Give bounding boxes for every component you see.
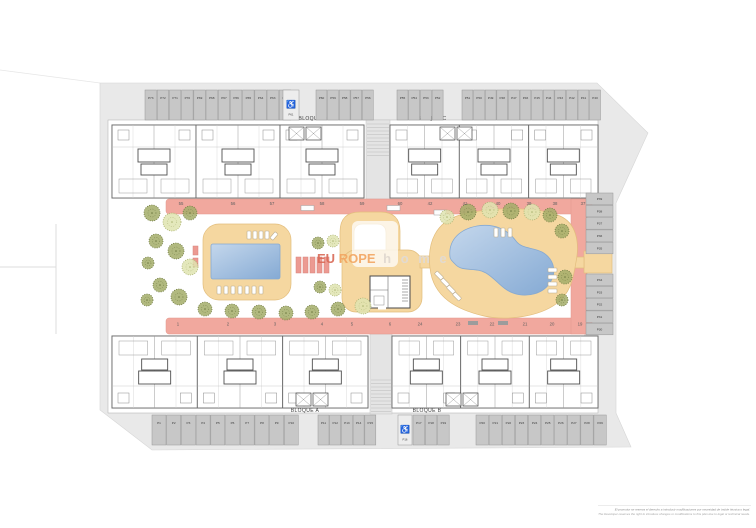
parking-stall [409,90,420,120]
watermark-home: h o m e [383,251,450,266]
parking-stall-label: P51 [465,96,471,100]
parking-stall [502,415,514,445]
core-room [548,371,580,384]
parking-stall-label: P5 [216,421,220,425]
tree-icon [142,257,154,269]
parking-stall [489,415,501,445]
parking-stall-label: P21 [493,421,499,425]
parking-stall-label: P18 [428,421,434,425]
wheelchair-icon: ♿ [286,99,296,109]
parking-stall [240,415,254,445]
parking-stall [270,415,284,445]
parking-stall [438,415,450,445]
parking-stall [476,415,488,445]
sun-lounger [253,231,257,239]
parking-stall [485,90,496,120]
parking-stall [206,90,218,120]
core-room [312,359,338,370]
tree-icon [182,259,198,275]
parking-stall-label: P31 [597,315,603,319]
parking-stall [267,90,279,120]
parking-stall [542,415,554,445]
sun-lounger [231,286,235,294]
parking-stall-label: P54 [411,96,417,100]
parking-stall-label: P12 [332,421,338,425]
bench [498,321,508,325]
bench [387,206,400,211]
driveway-bottom [370,334,392,414]
parking-stall-label: P72 [160,96,166,100]
parking-stall-label: P39 [597,197,603,201]
disclaimer-es: El promotor se reserva el derecho a intr… [615,508,750,512]
parking-stall-label: P32 [597,303,603,307]
parking-stall [351,90,362,120]
parking-stall-label: P15 [368,421,374,425]
block-bloque-c: BLOQUE C [390,116,598,198]
parking-stall-label: P52 [435,96,441,100]
plot-number: 22 [490,322,495,327]
core-room [413,359,439,370]
site-plan-page: BLOQUE DBLOQUE CBLOQUE ABLOQUE B P73P72P… [0,0,756,528]
sun-lounger [548,282,557,286]
parking-stall-label: P70 [185,96,191,100]
parking-stall [328,90,339,120]
parking-row-top-2: P60P59P58P57P56 [316,90,373,120]
parking-stall-label: P49 [488,96,494,100]
sun-lounger [252,286,256,294]
parking-stall-label: P16 [403,438,408,442]
watermark-text: EU ROPE h o m e [317,251,450,266]
parking-stall-label: P65 [246,96,252,100]
tree-icon [144,205,160,221]
parking-stall [339,90,350,120]
parking-stall [145,90,157,120]
parking-stall [218,90,230,120]
parking-stall [182,90,194,120]
parking-stall-label: P43 [557,96,563,100]
parking-stall-label: P38 [597,209,603,213]
parking-stall [353,415,364,445]
plot-number: 58 [320,201,325,206]
driveway-top [366,120,390,199]
planter [310,257,315,273]
parking-stall [515,415,527,445]
sun-lounger [548,289,557,293]
parking-stall-label: P69 [197,96,203,100]
parking-stall-label: P27 [571,421,577,425]
parking-stall-label: P20 [479,421,485,425]
tree-icon [153,278,167,292]
parking-stall-label: P14 [356,421,362,425]
tree-icon [331,302,345,316]
parking-stall-label: P1 [157,421,161,425]
parking-stall [167,415,181,445]
sun-lounger [224,286,228,294]
parking-stall-label: P58 [342,96,348,100]
core-room [547,149,579,162]
parking-stall-label: P61 [289,113,294,117]
parking-stall-label: P23 [519,421,525,425]
sun-lounger [245,286,249,294]
core-room [227,359,253,370]
plot-number: 21 [523,322,528,327]
parking-stall [568,415,580,445]
parking-stall [362,90,373,120]
tree-icon [163,213,181,231]
tree-icon [556,294,568,306]
parking-stall-label: P41 [581,96,587,100]
core-room [410,371,442,384]
tree-icon [524,204,540,220]
parking-stall-label: P25 [545,421,551,425]
tree-icon [460,204,476,220]
parking-stall-label: P44 [546,96,552,100]
parking-stall [474,90,485,120]
parking-row-right-1: P39P38P37P36P35 [586,193,613,254]
parking-stall-label: P64 [258,96,264,100]
tree-icon [440,210,454,224]
core-room [482,359,508,370]
sun-lounger [265,231,269,239]
parking-stall-label: P59 [330,96,336,100]
parking-stall-label: P29 [597,421,603,425]
sheet-frame-lines [0,70,100,334]
parking-row-right-2: P34P33P32P31P30 [586,274,613,335]
parking-stall-label: P17 [416,421,422,425]
parking-stall-label: P35 [597,246,603,250]
parking-stall-label: P4 [201,421,205,425]
parking-stall-label: P71 [172,96,178,100]
parking-stall-label: P55 [400,96,406,100]
plot-number: 19 [578,322,583,327]
plot-number: 40 [496,201,501,206]
block-bloque-a: BLOQUE A [112,336,368,414]
sun-lounger [501,228,505,237]
tree-icon [141,294,153,306]
block-bloque-d: BLOQUE D [112,116,364,198]
disclaimer: El promotor se reserva el derecho a intr… [598,506,751,517]
parking-stall [255,415,269,445]
bench [301,206,314,211]
parking-stall-label: P34 [597,278,603,282]
tree-icon [327,235,339,247]
sun-lounger [508,228,512,237]
parking-stall-label: P46 [523,96,529,100]
parking-stall [181,415,195,445]
building-door-gap [378,307,386,310]
plot-number: 37 [581,201,586,206]
planter [193,246,198,255]
parking-stall [594,415,606,445]
parking-stall-label: P42 [569,96,575,100]
sun-lounger [247,231,251,239]
rect-pool [211,244,280,279]
core-room [138,149,170,162]
core-room [225,164,251,175]
core-room [481,164,507,175]
sun-lounger [217,286,221,294]
core-room [551,359,577,370]
parking-stall-label: P9 [275,421,279,425]
core-room [550,164,576,175]
parking-stall-label: P48 [499,96,505,100]
parking-stall-label: P13 [344,421,350,425]
parking-stall-label: P26 [558,421,564,425]
sun-lounger [238,286,242,294]
plot-number: 41 [463,201,468,206]
watermark-rope: ROPE [339,251,376,266]
plot-number: 39 [527,201,532,206]
parking-stall [590,90,601,120]
plot-number: 42 [428,201,433,206]
core-room [479,371,511,384]
parking-stall-label: P56 [365,96,371,100]
parking-stall [528,415,540,445]
block-bloque-b: BLOQUE B [392,336,598,414]
parking-stall [425,415,437,445]
parking-stall-label: P22 [506,421,512,425]
parking-stall [318,415,329,445]
parking-stall-label: P19 [441,421,447,425]
tree-icon [198,302,212,316]
parking-stall [169,90,181,120]
parking-stall [397,90,408,120]
core-room [306,149,338,162]
plot-number: 55 [179,201,184,206]
parking-row-bottom-3: P17P18P19 [413,415,449,445]
tree-icon [329,284,341,296]
parking-stall [152,415,166,445]
parking-stall-label: P7 [245,421,249,425]
parking-stall-label: P66 [233,96,239,100]
planter [296,257,301,273]
parking-stall [365,415,376,445]
parking-stall-label: P24 [532,421,538,425]
parking-stall [284,415,298,445]
parking-row-bottom-hc: ♿P16 [398,415,412,445]
sun-lounger [548,275,557,279]
parking-stall [420,90,431,120]
block-label: BLOQUE A [291,408,320,414]
tree-icon [355,298,371,314]
bench [468,321,478,325]
block-label: BLOQUE B [413,408,442,414]
parking-stall [432,90,443,120]
parking-stall [555,90,566,120]
parking-stall [578,90,589,120]
parking-stall-label: P8 [260,421,264,425]
plot-number: 24 [418,322,423,327]
parking-stall [255,90,266,120]
watermark-eu: EU [317,251,335,266]
parking-stall-label: P6 [231,421,235,425]
parking-stall-label: P11 [321,421,327,425]
parking-stall [413,415,425,445]
parking-stall-label: P28 [584,421,590,425]
parking-stall [196,415,210,445]
plot-number: 56 [231,201,236,206]
core-room [409,149,441,162]
sun-lounger [259,231,263,239]
parking-stall [555,415,567,445]
core-room [142,359,168,370]
tree-icon [312,237,324,249]
plot-number: 38 [553,201,558,206]
parking-stall [566,90,577,120]
parking-stall [157,90,169,120]
plot-number: 59 [360,201,365,206]
tree-icon [225,304,239,318]
core-room [412,164,438,175]
core-room [222,149,254,162]
tree-icon [183,206,197,220]
parking-stall [508,90,519,120]
parking-stall-label: P45 [534,96,540,100]
parking-stall [243,90,255,120]
tree-icon [543,208,557,222]
core-room [309,164,335,175]
parking-stall [581,415,593,445]
parking-stall-label: P63 [270,96,276,100]
parking-stall [520,90,531,120]
tree-icon [503,203,519,219]
parking-stall [194,90,206,120]
core-room [141,164,167,175]
tree-icon [555,224,569,238]
sheet-corner-line [0,70,100,83]
tree-icon [558,270,572,284]
plot-number: 20 [550,322,555,327]
planter [303,257,308,273]
parking-stall [462,90,473,120]
parking-stall-label: P2 [172,421,176,425]
parking-stall-label: P68 [209,96,215,100]
parking-stall-label: P57 [353,96,359,100]
parking-stall-label: P37 [597,222,603,226]
parking-stall-label: P73 [148,96,154,100]
parking-stall [341,415,352,445]
parking-stall-label: P60 [319,96,325,100]
parking-stall [497,90,508,120]
tree-icon [149,234,163,248]
parking-stall-label: P40 [592,96,598,100]
tree-icon [279,306,293,320]
core-room [478,149,510,162]
tree-icon [305,305,319,319]
tree-icon [314,281,326,293]
tree-icon [252,305,266,319]
parking-stall-label: P33 [597,290,603,294]
parking-stall-label: P30 [597,327,603,331]
parking-row-bottom-2: P11P12P13P14P15 [318,415,376,445]
parking-stall-label: P3 [187,421,191,425]
sun-lounger [494,228,498,237]
wheelchair-icon: ♿ [400,424,410,434]
parking-stall-label: P47 [511,96,517,100]
parking-stall [532,90,543,120]
parking-stall [316,90,327,120]
parking-stall-label: P53 [423,96,429,100]
core-room [139,371,171,384]
parking-stall-label: P10 [289,421,295,425]
plot-number: 60 [398,201,403,206]
parking-stall-label: P50 [476,96,482,100]
parking-stall [330,415,341,445]
parking-stall-label: P67 [221,96,227,100]
tree-icon [171,289,187,305]
parking-stall [211,415,225,445]
sun-lounger [548,268,557,272]
plot-number: 23 [456,322,461,327]
parking-stall [226,415,240,445]
plot-number: 57 [270,201,275,206]
parking-row-top-hc: ♿P61 [283,90,299,120]
core-room [309,371,341,384]
parking-stall-label: P36 [597,234,603,238]
parking-stall [230,90,242,120]
parking-stall [543,90,554,120]
pool-building [370,276,410,310]
core-room [224,371,256,384]
disclaimer-en: The Developer reserves the right to intr… [598,512,750,516]
tree-icon [168,243,184,259]
sun-lounger [259,286,263,294]
site-plan-drawing: BLOQUE DBLOQUE CBLOQUE ABLOQUE B P73P72P… [0,0,756,528]
deck-bridge-right [584,251,612,273]
path-bottom [166,318,592,334]
